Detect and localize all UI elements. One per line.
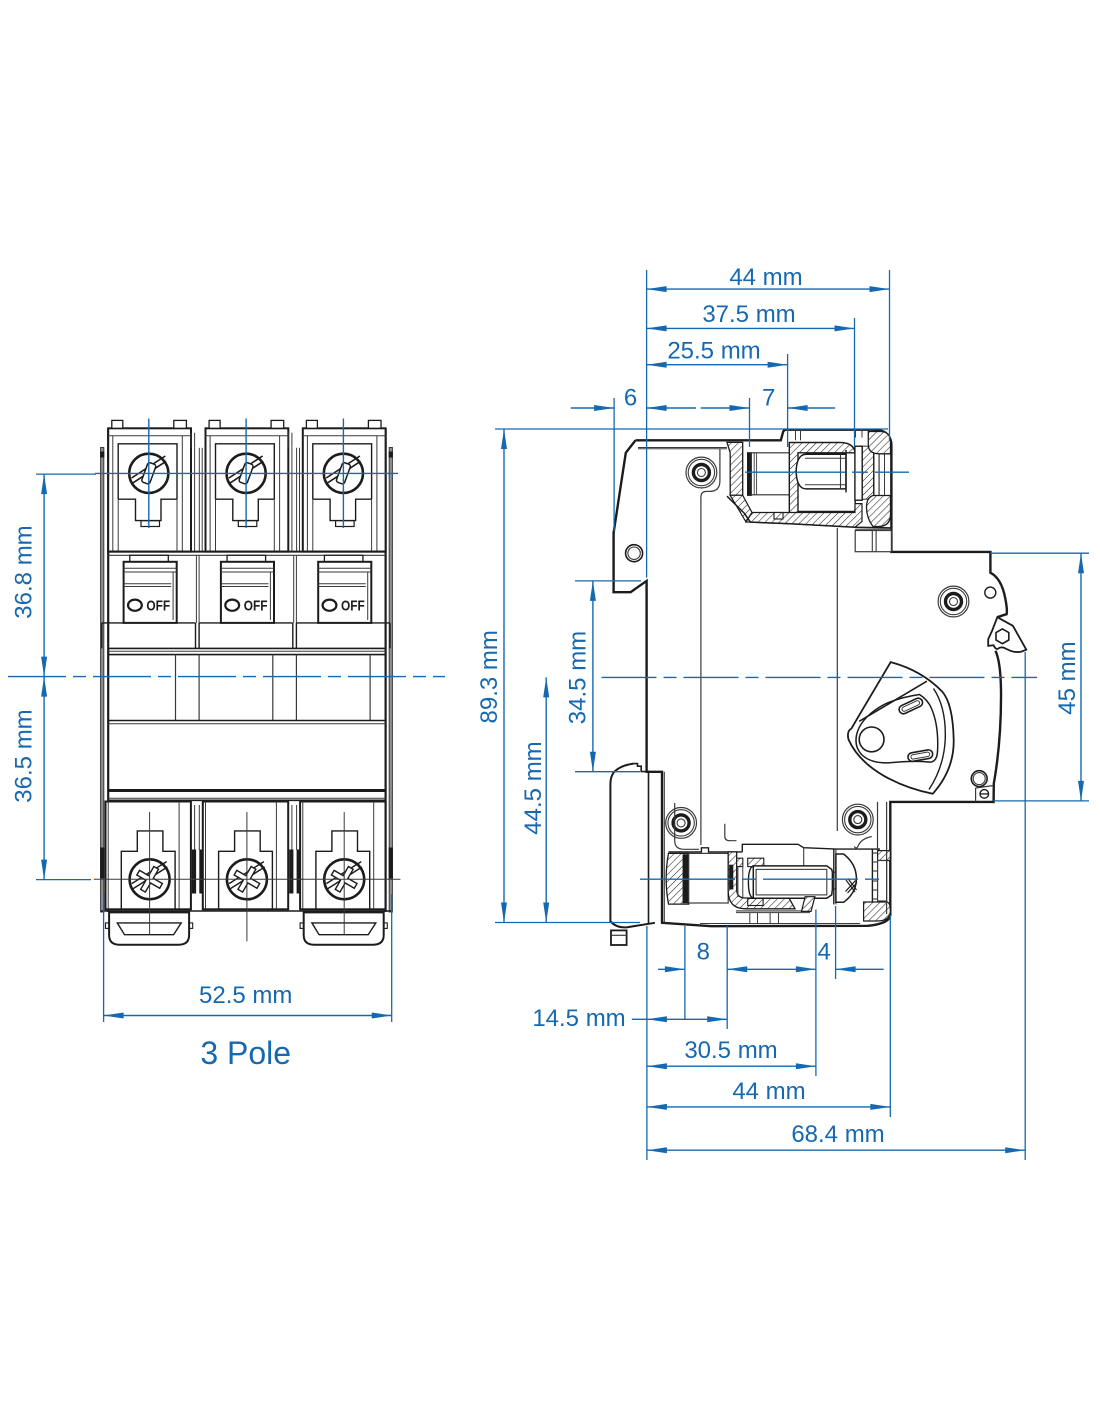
svg-text:OFF: OFF bbox=[244, 597, 268, 614]
svg-text:44 mm: 44 mm bbox=[729, 264, 802, 291]
svg-text:89.3 mm: 89.3 mm bbox=[476, 630, 503, 723]
svg-text:14.5 mm: 14.5 mm bbox=[532, 1005, 625, 1032]
svg-text:7: 7 bbox=[762, 385, 775, 412]
svg-text:36.5 mm: 36.5 mm bbox=[11, 709, 38, 802]
svg-text:37.5 mm: 37.5 mm bbox=[702, 301, 795, 328]
svg-text:34.5 mm: 34.5 mm bbox=[565, 631, 592, 724]
svg-text:36.8 mm: 36.8 mm bbox=[11, 525, 38, 618]
svg-text:OFF: OFF bbox=[341, 597, 365, 614]
svg-text:68.4 mm: 68.4 mm bbox=[791, 1121, 884, 1148]
svg-text:30.5 mm: 30.5 mm bbox=[684, 1037, 777, 1064]
svg-text:6: 6 bbox=[624, 385, 637, 412]
svg-text:3 Pole: 3 Pole bbox=[200, 1035, 291, 1071]
svg-text:45 mm: 45 mm bbox=[1054, 641, 1081, 714]
svg-text:44.5 mm: 44.5 mm bbox=[520, 741, 547, 834]
svg-text:25.5 mm: 25.5 mm bbox=[667, 338, 760, 365]
svg-text:OFF: OFF bbox=[146, 597, 170, 614]
svg-text:8: 8 bbox=[697, 939, 710, 966]
svg-text:52.5 mm: 52.5 mm bbox=[199, 982, 292, 1009]
svg-text:4: 4 bbox=[817, 939, 830, 966]
svg-text:44 mm: 44 mm bbox=[732, 1078, 805, 1105]
